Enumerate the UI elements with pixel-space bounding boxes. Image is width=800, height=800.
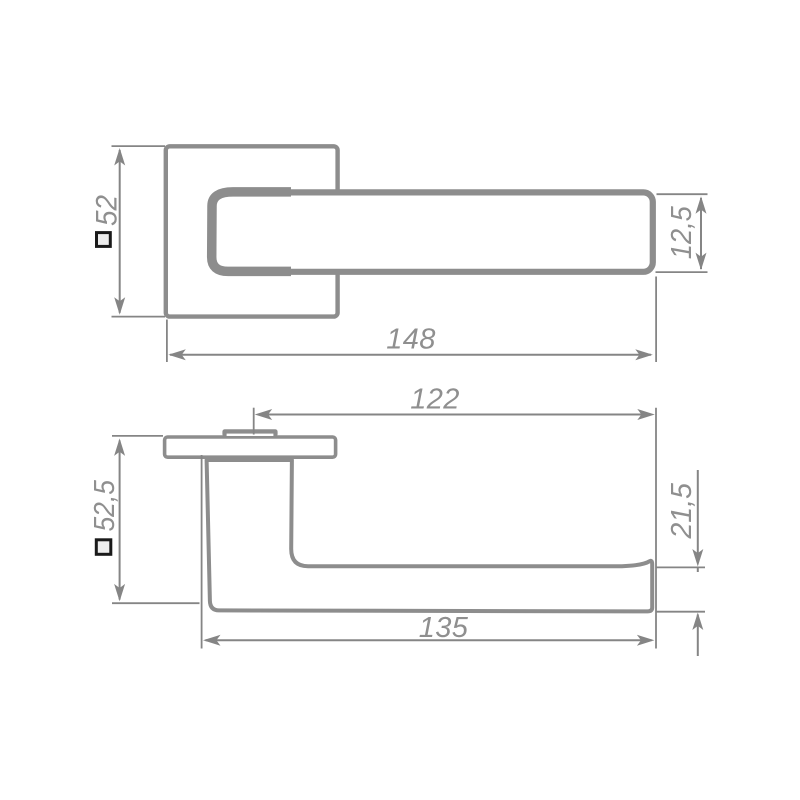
svg-text:52,5: 52,5	[89, 479, 121, 531]
svg-text:122: 122	[410, 384, 460, 416]
svg-text:21,5: 21,5	[666, 482, 698, 539]
svg-text:135: 135	[419, 612, 469, 644]
svg-text:12,5: 12,5	[666, 205, 698, 259]
svg-text:52: 52	[91, 195, 124, 226]
svg-text:148: 148	[386, 324, 436, 356]
